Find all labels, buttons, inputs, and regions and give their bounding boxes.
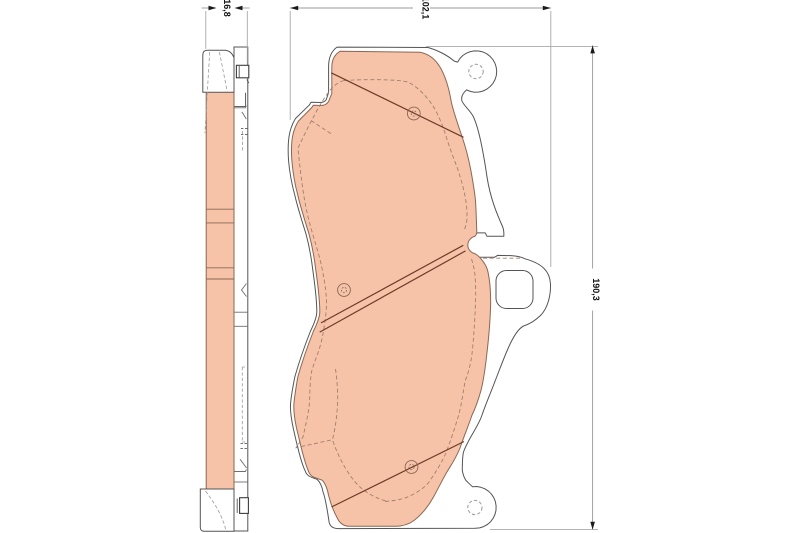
- svg-text:102,1: 102,1: [421, 0, 431, 19]
- svg-text:190,3: 190,3: [591, 278, 601, 301]
- svg-text:16,8: 16,8: [222, 0, 232, 17]
